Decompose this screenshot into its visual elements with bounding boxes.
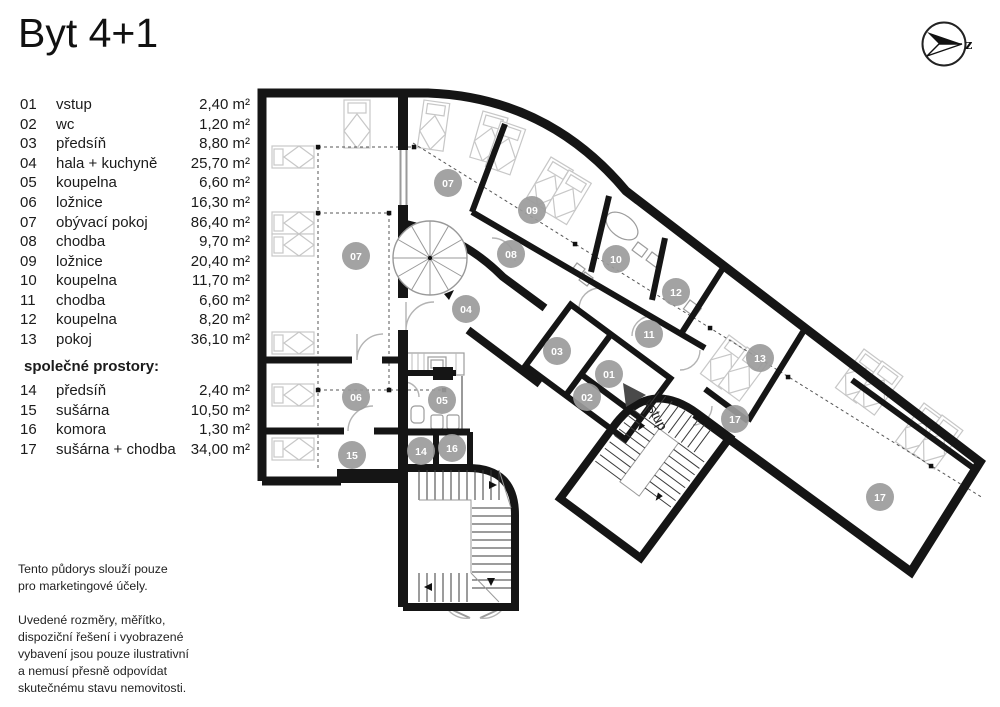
room-marker-label-03: 03	[551, 346, 563, 358]
legend-num-15: 15	[20, 402, 56, 419]
legend-nm-04: hala + kuchyně	[56, 155, 191, 172]
legend-nm-05: koupelna	[56, 174, 199, 191]
legend-num-05: 05	[20, 174, 56, 191]
room-marker-label-08: 08	[505, 249, 517, 261]
legend-row-10: 10koupelna11,70 m²	[20, 271, 250, 291]
bed-symbols	[272, 100, 963, 469]
legend-area-11: 6,60 m²	[199, 292, 250, 309]
legend-row-01: 01vstup2,40 m²	[20, 95, 250, 115]
legend-area-13: 36,10 m²	[191, 331, 250, 348]
legend-row-09: 09ložnice20,40 m²	[20, 251, 250, 271]
legend-num-16: 16	[20, 421, 56, 438]
room-marker-label-17: 17	[729, 414, 741, 426]
legend-num-02: 02	[20, 116, 56, 133]
legend-nm-11: chodba	[56, 292, 199, 309]
room-marker-label-15: 15	[346, 450, 358, 462]
legend-area-15: 10,50 m²	[191, 402, 250, 419]
room-legend: 01vstup2,40 m²02wc1,20 m²03předsíň8,80 m…	[20, 95, 250, 459]
legend-shared-rooms: 14předsíň2,40 m²15sušárna10,50 m²16komor…	[20, 381, 250, 459]
room-marker-label-04: 04	[460, 304, 472, 316]
legend-area-01: 2,40 m²	[199, 96, 250, 113]
legend-nm-15: sušárna	[56, 402, 191, 419]
legend-nm-13: pokoj	[56, 331, 191, 348]
walls	[262, 93, 980, 607]
legend-area-12: 8,20 m²	[199, 311, 250, 328]
legend-area-10: 11,70 m²	[192, 272, 250, 289]
footnote-marketing: Tento půdorys slouží pouze pro marketing…	[18, 561, 248, 595]
legend-num-13: 13	[20, 331, 56, 348]
legend-area-09: 20,40 m²	[191, 253, 250, 270]
room-marker-label-11: 11	[643, 329, 654, 341]
legend-row-03: 03předsíň8,80 m²	[20, 134, 250, 154]
legend-num-12: 12	[20, 311, 56, 328]
legend-row-07: 07obývací pokoj86,40 m²	[20, 212, 250, 232]
staircase-main	[419, 470, 511, 602]
legend-num-06: 06	[20, 194, 56, 211]
legend-row-08: 08chodba9,70 m²	[20, 232, 250, 252]
legend-row-16: 16komora1,30 m²	[20, 420, 250, 440]
legend-nm-06: ložnice	[56, 194, 191, 211]
legend-num-03: 03	[20, 135, 56, 152]
page: vstup 0709080710120411031301020605171614…	[0, 0, 1000, 707]
legend-area-16: 1,30 m²	[199, 421, 250, 438]
room-marker-label-05: 05	[436, 395, 448, 407]
north-arrow-icon	[927, 32, 962, 44]
legend-area-14: 2,40 m²	[199, 382, 250, 399]
legend-nm-09: ložnice	[56, 253, 191, 270]
room-marker-label-09: 09	[526, 205, 538, 217]
room-marker-label-12: 12	[670, 287, 682, 299]
legend-area-06: 16,30 m²	[191, 194, 250, 211]
legend-row-12: 12koupelna8,20 m²	[20, 310, 250, 330]
legend-area-17: 34,00 m²	[191, 441, 250, 458]
legend-num-07: 07	[20, 214, 56, 231]
room-marker-label-02: 02	[581, 392, 593, 404]
legend-num-09: 09	[20, 253, 56, 270]
footnote-disclaimer: Uvedené rozměry, měřítko, dispoziční řeš…	[18, 612, 248, 697]
room-marker-label-06: 06	[350, 392, 362, 404]
legend-num-14: 14	[20, 382, 56, 399]
legend-area-05: 6,60 m²	[199, 174, 250, 191]
legend-row-05: 05koupelna6,60 m²	[20, 173, 250, 193]
legend-num-04: 04	[20, 155, 56, 172]
legend-nm-12: koupelna	[56, 311, 199, 328]
compass: z	[914, 14, 980, 78]
room-marker-label-07: 07	[350, 251, 362, 263]
room-marker-label-17: 17	[874, 492, 886, 504]
legend-num-10: 10	[20, 272, 56, 289]
legend-num-11: 11	[20, 292, 56, 309]
legend-row-13: 13pokoj36,10 m²	[20, 330, 250, 350]
legend-area-07: 86,40 m²	[191, 214, 250, 231]
legend-shared-heading: společné prostory:	[24, 358, 250, 375]
legend-nm-07: obývací pokoj	[56, 214, 191, 231]
room-marker-label-13: 13	[754, 353, 766, 365]
legend-row-17: 17sušárna + chodba34,00 m²	[20, 440, 250, 460]
legend-area-04: 25,70 m²	[191, 155, 250, 172]
room-marker-label-07: 07	[442, 178, 454, 190]
room-marker-label-16: 16	[446, 443, 458, 455]
page-title: Byt 4+1	[18, 10, 158, 57]
legend-nm-08: chodba	[56, 233, 199, 250]
legend-row-02: 02wc1,20 m²	[20, 115, 250, 135]
legend-area-02: 1,20 m²	[199, 116, 250, 133]
room-marker-label-10: 10	[610, 254, 622, 266]
legend-nm-02: wc	[56, 116, 199, 133]
legend-nm-10: koupelna	[56, 272, 192, 289]
legend-main-rooms: 01vstup2,40 m²02wc1,20 m²03předsíň8,80 m…	[20, 95, 250, 349]
legend-row-06: 06ložnice16,30 m²	[20, 193, 250, 213]
legend-row-11: 11chodba6,60 m²	[20, 290, 250, 310]
legend-nm-14: předsíň	[56, 382, 199, 399]
legend-area-03: 8,80 m²	[199, 135, 250, 152]
legend-nm-01: vstup	[56, 96, 199, 113]
legend-row-04: 04hala + kuchyně25,70 m²	[20, 154, 250, 174]
compass-letter: z	[965, 38, 972, 53]
room-marker-label-14: 14	[415, 446, 427, 458]
legend-nm-03: předsíň	[56, 135, 199, 152]
legend-nm-17: sušárna + chodba	[56, 441, 191, 458]
legend-num-01: 01	[20, 96, 56, 113]
room-marker-label-01: 01	[603, 369, 615, 381]
legend-area-08: 9,70 m²	[199, 233, 250, 250]
north-arrow-icon-lower	[927, 44, 962, 56]
legend-num-08: 08	[20, 233, 56, 250]
legend-nm-16: komora	[56, 421, 199, 438]
legend-row-15: 15sušárna10,50 m²	[20, 401, 250, 421]
legend-row-14: 14předsíň2,40 m²	[20, 381, 250, 401]
legend-num-17: 17	[20, 441, 56, 458]
